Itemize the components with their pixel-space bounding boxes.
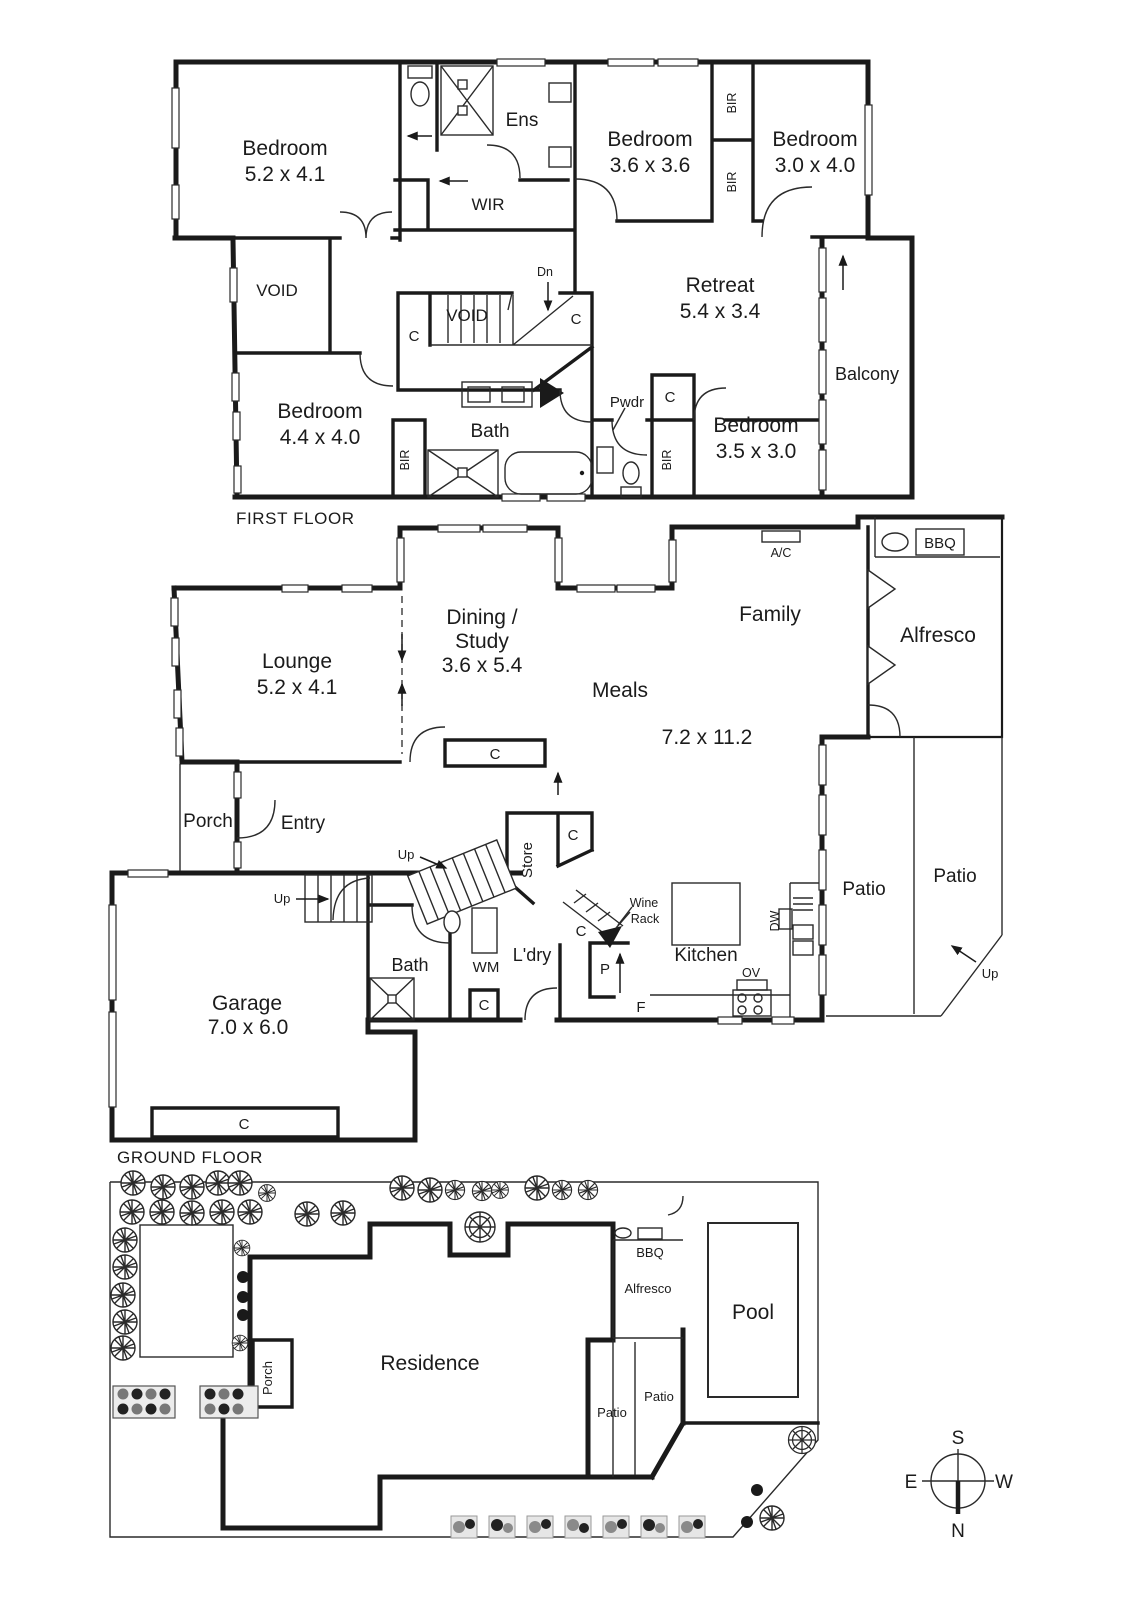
gf-patio2-label: Patio bbox=[933, 866, 976, 887]
ff-bir2-label: BIR bbox=[725, 172, 739, 193]
ff-bedroom3-dims: 3.0 x 4.0 bbox=[775, 154, 856, 177]
ff-bedroom3-name: Bedroom bbox=[772, 128, 857, 151]
site-lawn bbox=[140, 1225, 233, 1357]
ff-bedroom4-name: Bedroom bbox=[277, 400, 362, 423]
site-pool-label: Pool bbox=[732, 1301, 774, 1324]
ff-void1-label: VOID bbox=[256, 281, 298, 300]
gf-fridge-label: F bbox=[636, 999, 645, 1016]
gf-garage-name: Garage bbox=[212, 992, 282, 1015]
site-patio2-label: Patio bbox=[644, 1389, 674, 1404]
compass-east: E bbox=[905, 1472, 918, 1493]
ff-arrows bbox=[408, 136, 843, 430]
site-residence-label: Residence bbox=[380, 1352, 479, 1375]
ff-c1-label: C bbox=[409, 328, 420, 345]
ff-bedroom2-dims: 3.6 x 3.6 bbox=[610, 154, 691, 177]
gf-dining-line1: Dining / bbox=[446, 606, 517, 629]
gf-up3-label: Up bbox=[982, 966, 999, 981]
gf-patio1-label: Patio bbox=[842, 879, 885, 900]
ff-bir4-label: BIR bbox=[660, 450, 674, 471]
gf-pantry-label: P bbox=[600, 961, 610, 978]
ff-ens-label: Ens bbox=[506, 110, 539, 131]
gf-wine-line2: Rack bbox=[631, 912, 660, 926]
site-bbq-unit bbox=[615, 1228, 662, 1239]
ff-retreat-name: Retreat bbox=[686, 274, 755, 297]
gf-up2-label: Up bbox=[398, 847, 415, 862]
gf-dw-label: DW bbox=[768, 910, 782, 931]
site-bottom-bed-row bbox=[451, 1516, 705, 1538]
gf-entry-label: Entry bbox=[281, 813, 326, 834]
site-walls-medium bbox=[253, 1340, 818, 1423]
gf-dining-dims: 3.6 x 5.4 bbox=[442, 654, 523, 677]
ff-balcony-label: Balcony bbox=[835, 364, 899, 384]
gf-porch-label: Porch bbox=[183, 811, 233, 832]
gf-c2-label: C bbox=[568, 827, 579, 844]
compass-west: W bbox=[995, 1472, 1013, 1493]
ff-bedroom1-name: Bedroom bbox=[242, 137, 327, 160]
compass-north: N bbox=[951, 1521, 965, 1542]
gf-wine-line1: Wine bbox=[630, 896, 659, 910]
ff-bedroom5-dims: 3.5 x 3.0 bbox=[716, 440, 797, 463]
floorplan-page: Bedroom 5.2 x 4.1 Ens WIR Bedroom 3.6 x … bbox=[0, 0, 1131, 1600]
ff-ensuite-fixtures bbox=[408, 66, 571, 167]
gf-stairs bbox=[408, 840, 516, 924]
ff-bedroom4-dims: 4.4 x 4.0 bbox=[280, 426, 361, 449]
ff-bir3-label: BIR bbox=[398, 450, 412, 471]
gf-c3-label: C bbox=[576, 923, 587, 940]
ff-pwdr-label: Pwdr bbox=[610, 394, 644, 411]
compass-south: S bbox=[952, 1428, 965, 1449]
ff-c2-label: C bbox=[571, 311, 582, 328]
ff-bath-label: Bath bbox=[470, 421, 509, 442]
ground-floor-plan: Lounge 5.2 x 4.1 Dining / Study 3.6 x 5.… bbox=[109, 517, 1002, 1215]
gf-up1-label: Up bbox=[274, 891, 291, 906]
ff-bir1-label: BIR bbox=[725, 93, 739, 114]
gf-bbq-label: BBQ bbox=[924, 535, 956, 552]
ground-floor-title: GROUND FLOOR bbox=[117, 1148, 263, 1167]
gf-oven-label: OV bbox=[742, 966, 761, 980]
ff-bedroom2-name: Bedroom bbox=[607, 128, 692, 151]
gf-ldry-label: L'dry bbox=[513, 945, 551, 965]
gf-ac-label: A/C bbox=[771, 546, 792, 560]
ff-bedroom5-name: Bedroom bbox=[713, 414, 798, 437]
ff-retreat-dims: 5.4 x 3.4 bbox=[680, 300, 761, 323]
first-floor-plan: Bedroom 5.2 x 4.1 Ens WIR Bedroom 3.6 x … bbox=[172, 59, 912, 528]
gf-lounge-name: Lounge bbox=[262, 650, 332, 673]
ff-c3-label: C bbox=[665, 389, 676, 406]
ff-dn-label: Dn bbox=[537, 265, 553, 279]
site-bbq-label: BBQ bbox=[636, 1245, 663, 1260]
ff-bedroom1-dims: 5.2 x 4.1 bbox=[245, 163, 326, 186]
gf-dining-line2: Study bbox=[455, 630, 509, 653]
gf-garage-dims: 7.0 x 6.0 bbox=[208, 1016, 289, 1039]
gf-alfresco-label: Alfresco bbox=[900, 624, 976, 647]
site-alfresco-label: Alfresco bbox=[625, 1281, 672, 1296]
gf-c1-label: C bbox=[490, 746, 501, 763]
gf-family-label: Family bbox=[739, 603, 801, 626]
ff-void2-label: VOID bbox=[446, 306, 488, 325]
gf-c5-label: C bbox=[239, 1116, 250, 1133]
floorplan-image: Bedroom 5.2 x 4.1 Ens WIR Bedroom 3.6 x … bbox=[0, 0, 1131, 1600]
site-porch-label: Porch bbox=[260, 1361, 275, 1395]
site-patio1-label: Patio bbox=[597, 1405, 627, 1420]
gf-kitchen-label: Kitchen bbox=[674, 945, 737, 966]
site-plan: Residence Porch BBQ Alfresco Pool Patio … bbox=[110, 1171, 818, 1538]
compass: S E W N bbox=[905, 1428, 1013, 1542]
gf-alfresco-doors bbox=[868, 570, 895, 684]
ff-wir-label: WIR bbox=[471, 195, 504, 214]
gf-c4-label: C bbox=[479, 997, 490, 1014]
gf-store-label: Store bbox=[519, 842, 536, 878]
gf-bath-label: Bath bbox=[391, 955, 428, 975]
first-floor-title: FIRST FLOOR bbox=[236, 509, 355, 528]
gf-ac-unit bbox=[762, 531, 800, 542]
gf-wm-label: WM bbox=[473, 959, 500, 976]
gf-lounge-dims: 5.2 x 4.1 bbox=[257, 676, 338, 699]
gf-meals-name: Meals bbox=[592, 679, 648, 702]
gf-meals-dims: 7.2 x 11.2 bbox=[662, 726, 753, 749]
